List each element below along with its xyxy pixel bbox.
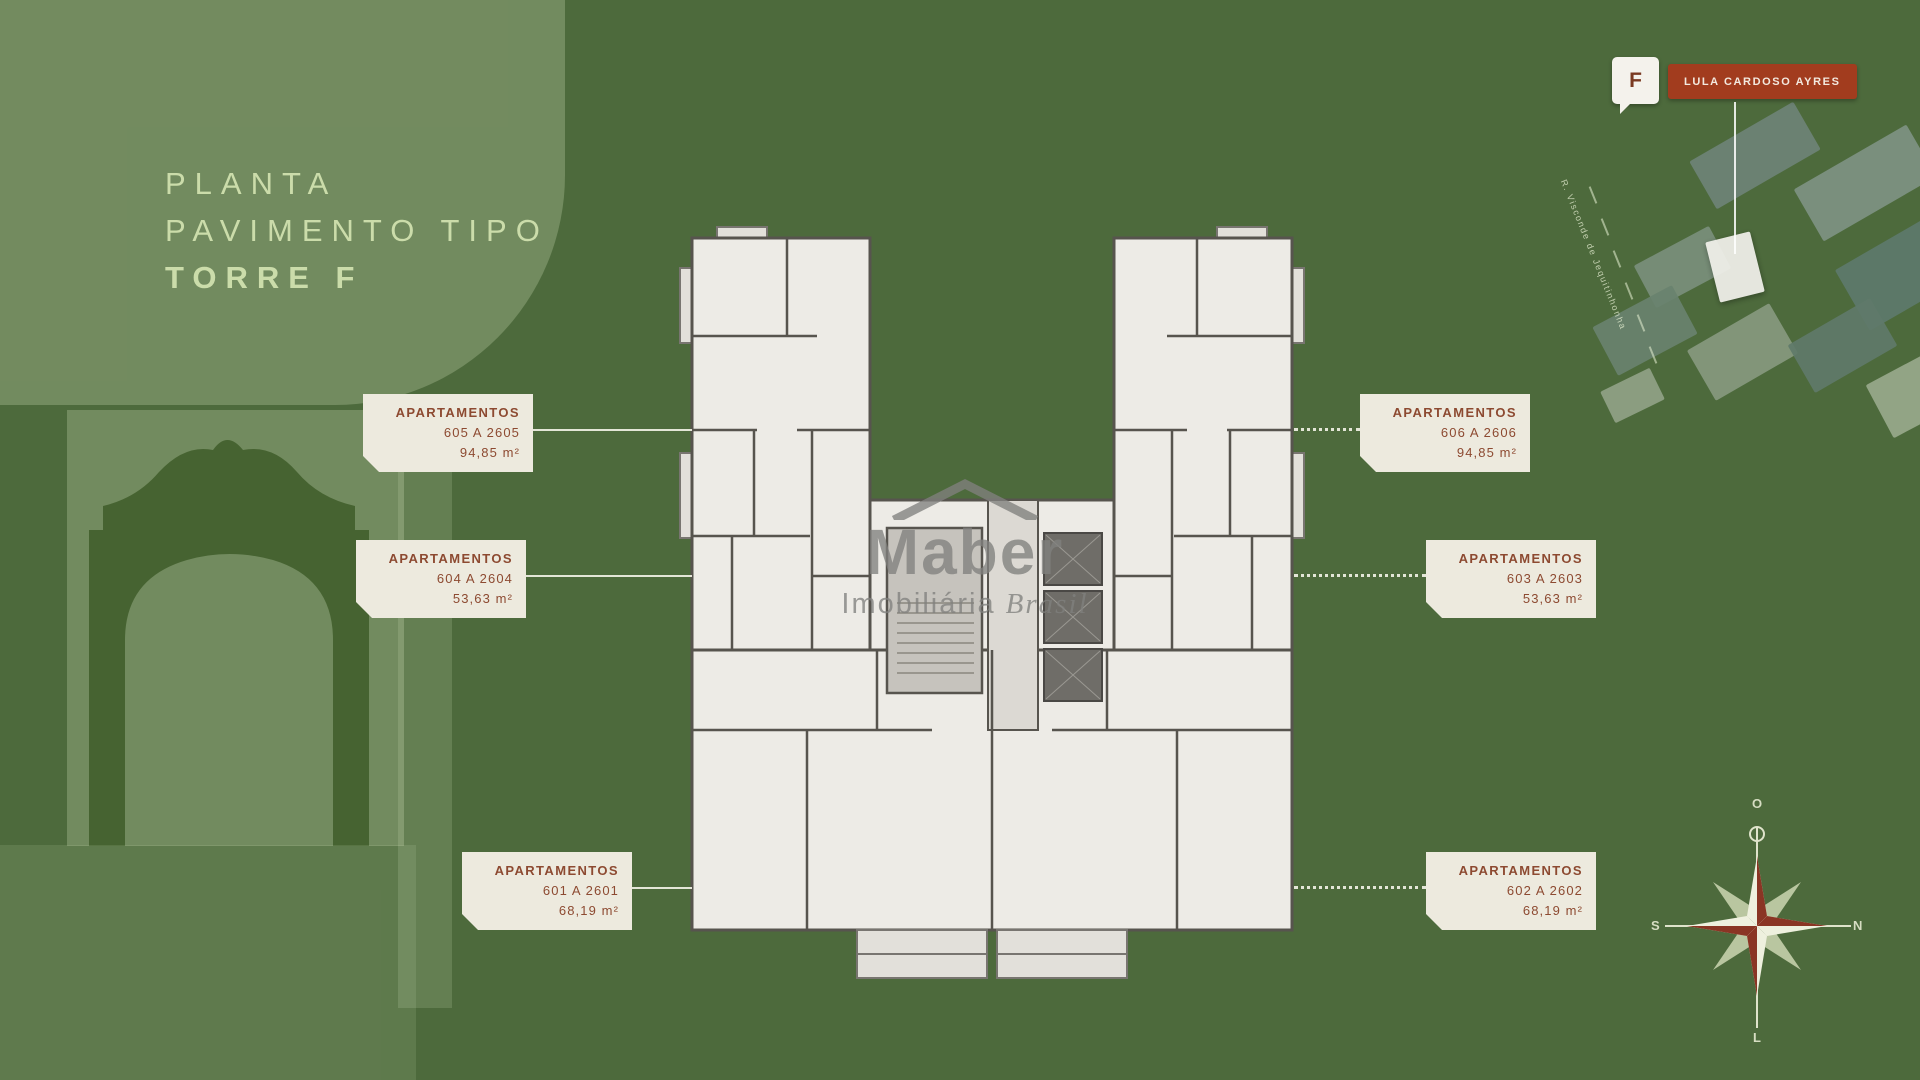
callout-label: APARTAMENTOS: [478, 861, 619, 881]
callout-label: APARTAMENTOS: [1376, 403, 1517, 423]
callout-area: 53,63 m²: [1442, 589, 1583, 609]
pin-tower-letter: F: [1629, 69, 1642, 93]
callout-area: 68,19 m²: [1442, 901, 1583, 921]
background-arch-panel: [67, 410, 404, 846]
floor-plan-drawing: [678, 226, 1306, 992]
leader-bottom-left: [632, 887, 692, 889]
callout-area: 68,19 m²: [478, 901, 619, 921]
pin-banner-text: LULA CARDOSO AYRES: [1684, 76, 1841, 88]
background-bottom-left-panel: [0, 845, 416, 1080]
callout-units: 606 A 2606: [1376, 423, 1517, 443]
callout-label: APARTAMENTOS: [372, 549, 513, 569]
floor-plan: [678, 226, 1306, 992]
title-line-1: PLANTA: [165, 160, 549, 207]
colonial-arch-silhouette: [67, 410, 404, 846]
callout-units: 603 A 2603: [1442, 569, 1583, 589]
callout-apartments-mid-left: APARTAMENTOS 604 A 2604 53,63 m²: [356, 540, 526, 618]
leader-top-left: [533, 429, 692, 431]
site-building: [1866, 348, 1920, 439]
leader-mid-right: [1294, 574, 1426, 577]
callout-apartments-bottom-left: APARTAMENTOS 601 A 2601 68,19 m²: [462, 852, 632, 930]
callout-area: 53,63 m²: [372, 589, 513, 609]
leader-mid-left: [526, 575, 692, 577]
compass-letter-right: N: [1853, 918, 1862, 933]
callout-units: 604 A 2604: [372, 569, 513, 589]
compass-rose-drawing: [1655, 800, 1860, 1045]
callout-area: 94,85 m²: [379, 443, 520, 463]
leader-bottom-right: [1294, 886, 1426, 889]
callout-label: APARTAMENTOS: [1442, 861, 1583, 881]
callout-label: APARTAMENTOS: [379, 403, 520, 423]
pin-leader-line: [1734, 102, 1736, 254]
callout-apartments-mid-right: APARTAMENTOS 603 A 2603 53,63 m²: [1426, 540, 1596, 618]
compass-rose-icon: O N L S: [1655, 800, 1860, 1045]
site-building: [1600, 368, 1665, 424]
title-line-3-tower: TORRE F: [165, 254, 549, 301]
poster-canvas: PLANTA PAVIMENTO TIPO TORRE F: [0, 0, 1920, 1080]
callout-apartments-top-left: APARTAMENTOS 605 A 2605 94,85 m²: [363, 394, 533, 472]
page-title: PLANTA PAVIMENTO TIPO TORRE F: [165, 160, 549, 301]
map-pin-badge: F: [1612, 57, 1659, 104]
callout-apartments-top-right: APARTAMENTOS 606 A 2606 94,85 m²: [1360, 394, 1530, 472]
site-building: [1687, 303, 1798, 401]
compass-letter-bottom: L: [1753, 1030, 1761, 1045]
callout-label: APARTAMENTOS: [1442, 549, 1583, 569]
pin-banner: LULA CARDOSO AYRES: [1668, 64, 1857, 99]
leader-top-right: [1294, 428, 1360, 431]
callout-units: 601 A 2601: [478, 881, 619, 901]
callout-apartments-bottom-right: APARTAMENTOS 602 A 2602 68,19 m²: [1426, 852, 1596, 930]
callout-units: 605 A 2605: [379, 423, 520, 443]
title-line-2: PAVIMENTO TIPO: [165, 207, 549, 254]
compass-letter-left: S: [1651, 918, 1660, 933]
callout-units: 602 A 2602: [1442, 881, 1583, 901]
callout-area: 94,85 m²: [1376, 443, 1517, 463]
compass-letter-top: O: [1752, 796, 1762, 811]
